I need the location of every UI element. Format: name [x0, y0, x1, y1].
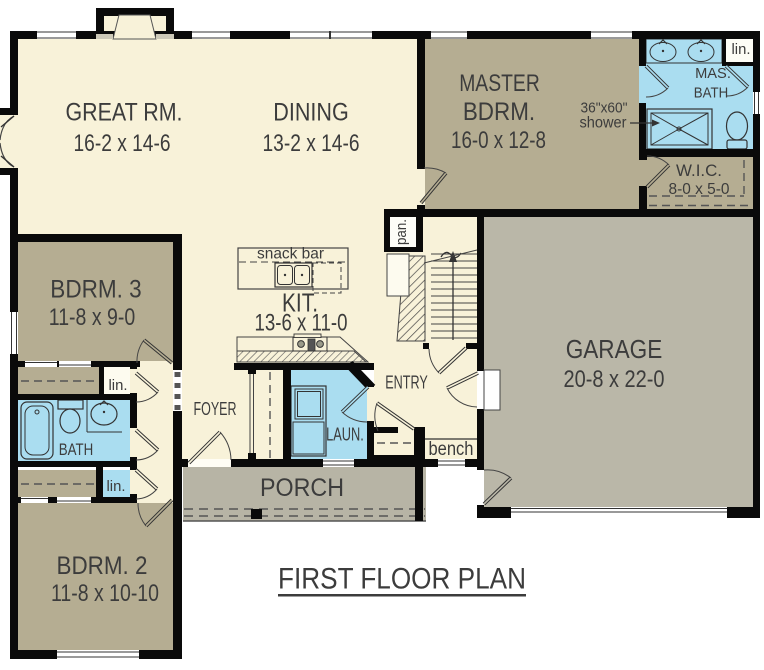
svg-text:W.I.C.: W.I.C.	[676, 161, 722, 180]
svg-text:GREAT RM.: GREAT RM.	[66, 99, 183, 127]
svg-text:BATH: BATH	[59, 440, 94, 459]
svg-text:BDRM. 2: BDRM. 2	[57, 552, 148, 580]
svg-text:8-0 x 5-0: 8-0 x 5-0	[669, 181, 730, 198]
svg-text:11-8 x 9-0: 11-8 x 9-0	[49, 304, 135, 331]
svg-text:MASTER: MASTER	[459, 70, 540, 97]
svg-text:lin.: lin.	[107, 478, 126, 495]
svg-text:DINING: DINING	[273, 99, 349, 127]
svg-text:16-0 x 12-8: 16-0 x 12-8	[451, 127, 546, 154]
svg-text:pan.: pan.	[394, 219, 410, 245]
svg-text:GARAGE: GARAGE	[566, 336, 663, 364]
svg-text:shower: shower	[580, 115, 627, 132]
svg-text:13-2 x 14-6: 13-2 x 14-6	[263, 130, 360, 157]
svg-text:BDRM.: BDRM.	[463, 98, 535, 126]
svg-text:LAUN.: LAUN.	[326, 425, 364, 445]
svg-text:PORCH: PORCH	[260, 474, 344, 502]
svg-text:16-2 x 14-6: 16-2 x 14-6	[74, 130, 171, 157]
svg-text:MAS.: MAS.	[695, 65, 731, 82]
svg-text:FIRST FLOOR PLAN: FIRST FLOOR PLAN	[278, 563, 526, 596]
svg-text:snack bar: snack bar	[257, 246, 325, 263]
svg-text:lin.: lin.	[732, 41, 751, 58]
svg-text:FOYER: FOYER	[194, 399, 237, 419]
svg-text:BATH: BATH	[694, 85, 728, 102]
svg-text:13-6 x 11-0: 13-6 x 11-0	[255, 310, 348, 337]
svg-text:lin.: lin.	[109, 377, 128, 394]
svg-text:ENTRY: ENTRY	[385, 373, 428, 393]
svg-text:11-8 x 10-10: 11-8 x 10-10	[51, 580, 159, 607]
svg-text:bench: bench	[429, 439, 474, 460]
svg-text:20-8 x 22-0: 20-8 x 22-0	[564, 366, 665, 393]
svg-text:BDRM. 3: BDRM. 3	[50, 276, 141, 304]
